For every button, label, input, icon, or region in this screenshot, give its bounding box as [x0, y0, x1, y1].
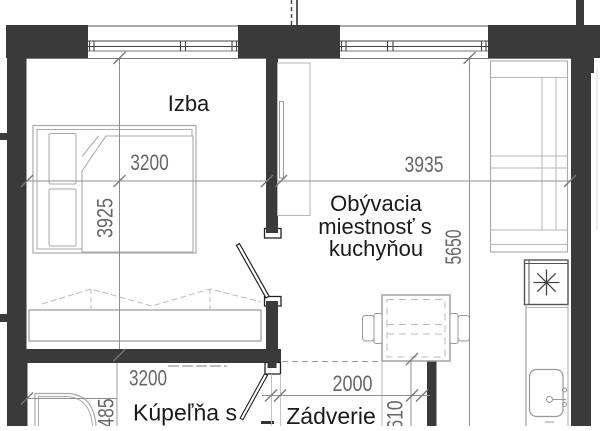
svg-text:2000: 2000: [333, 371, 373, 396]
svg-text:Zádverie: Zádverie: [286, 403, 375, 426]
svg-text:Obývacia: Obývacia: [330, 191, 422, 216]
svg-text:Izba: Izba: [168, 91, 210, 116]
svg-text:3925: 3925: [93, 198, 118, 238]
svg-text:Kúpeľňa s: Kúpeľňa s: [133, 400, 237, 426]
svg-text:610: 610: [383, 401, 408, 427]
svg-text:3200: 3200: [130, 150, 169, 175]
svg-text:485: 485: [94, 399, 119, 427]
svg-text:kuchyňou: kuchyňou: [329, 236, 423, 261]
svg-text:5650: 5650: [441, 230, 466, 265]
svg-text:3200: 3200: [129, 366, 167, 391]
svg-text:3935: 3935: [405, 152, 444, 177]
